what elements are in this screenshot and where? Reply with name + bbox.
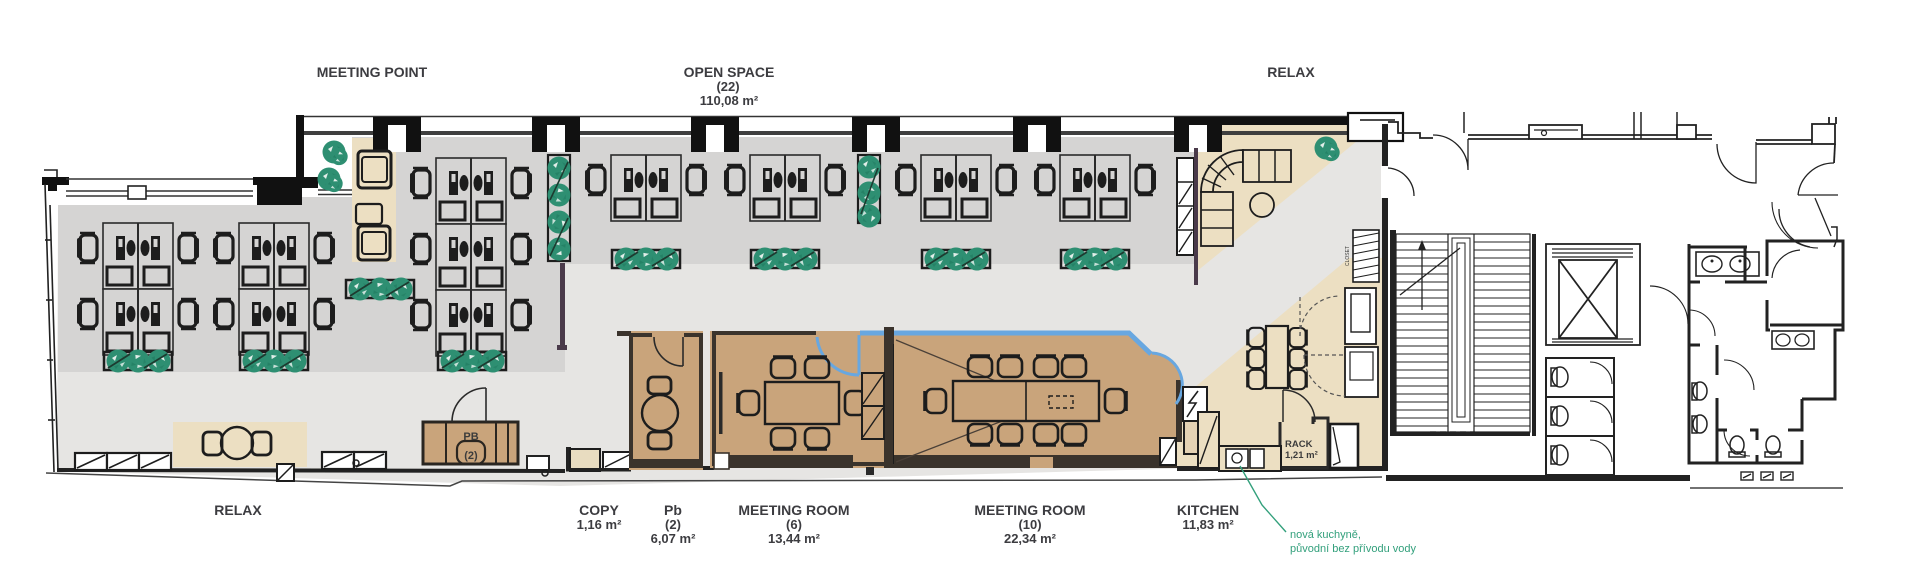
svg-text:původní bez přívodu vody: původní bez přívodu vody	[1290, 543, 1416, 555]
svg-text:COPY: COPY	[579, 502, 619, 518]
svg-text:(2): (2)	[464, 450, 478, 462]
svg-text:(10): (10)	[1018, 517, 1041, 532]
svg-text:110,08 m²: 110,08 m²	[700, 93, 759, 108]
svg-text:22,34 m²: 22,34 m²	[1004, 531, 1057, 546]
svg-text:(6): (6)	[786, 517, 802, 532]
svg-text:RELAX: RELAX	[1267, 64, 1315, 80]
svg-text:6,07 m²: 6,07 m²	[651, 531, 696, 546]
svg-text:PB: PB	[463, 431, 478, 443]
svg-text:13,44 m²: 13,44 m²	[768, 531, 821, 546]
svg-text:RACK: RACK	[1285, 439, 1313, 450]
svg-text:(22): (22)	[716, 79, 739, 94]
svg-text:(2): (2)	[665, 517, 681, 532]
svg-text:RELAX: RELAX	[214, 502, 262, 518]
svg-text:MEETING ROOM: MEETING ROOM	[974, 502, 1085, 518]
svg-text:Pb: Pb	[664, 502, 682, 518]
svg-text:MEETING ROOM: MEETING ROOM	[738, 502, 849, 518]
svg-text:KITCHEN: KITCHEN	[1177, 502, 1239, 518]
svg-text:11,83 m²: 11,83 m²	[1182, 517, 1234, 532]
svg-text:MEETING POINT: MEETING POINT	[317, 64, 428, 80]
svg-text:1,21 m²: 1,21 m²	[1285, 450, 1318, 461]
svg-text:nová kuchyně,: nová kuchyně,	[1290, 529, 1361, 541]
svg-text:OPEN SPACE: OPEN SPACE	[684, 64, 775, 80]
svg-text:1,16 m²: 1,16 m²	[577, 517, 622, 532]
svg-text:CLOSET: CLOSET	[1345, 246, 1351, 266]
